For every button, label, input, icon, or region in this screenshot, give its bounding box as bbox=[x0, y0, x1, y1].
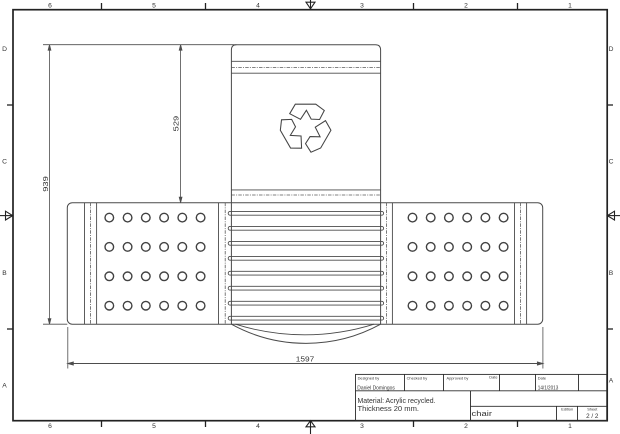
svg-text:Designed by: Designed by bbox=[358, 376, 380, 381]
svg-text:3: 3 bbox=[360, 2, 364, 9]
svg-text:chair: chair bbox=[472, 409, 493, 418]
svg-text:6: 6 bbox=[48, 423, 52, 430]
svg-text:D: D bbox=[2, 46, 7, 53]
svg-text:D: D bbox=[609, 46, 614, 53]
svg-text:C: C bbox=[609, 159, 614, 166]
svg-text:1: 1 bbox=[568, 2, 572, 9]
svg-text:Daniel Domingos: Daniel Domingos bbox=[357, 385, 395, 391]
svg-text:Thickness 20 mm.: Thickness 20 mm. bbox=[358, 404, 420, 413]
svg-text:A: A bbox=[2, 383, 7, 390]
svg-text:5: 5 bbox=[152, 2, 156, 9]
svg-text:Approved by: Approved by bbox=[447, 376, 469, 381]
svg-text:Edition: Edition bbox=[561, 407, 573, 412]
svg-text:4: 4 bbox=[256, 423, 260, 430]
svg-text:14/1/2013: 14/1/2013 bbox=[538, 385, 559, 391]
svg-text:B: B bbox=[2, 270, 7, 277]
svg-text:3: 3 bbox=[360, 423, 364, 430]
svg-text:C: C bbox=[2, 159, 7, 166]
svg-text:6: 6 bbox=[48, 2, 52, 9]
svg-text:1: 1 bbox=[568, 423, 572, 430]
svg-text:Date: Date bbox=[489, 375, 497, 380]
svg-text:Checked by: Checked by bbox=[407, 376, 428, 381]
svg-text:Sheet: Sheet bbox=[587, 406, 598, 411]
svg-text:939: 939 bbox=[41, 176, 50, 192]
svg-text:529: 529 bbox=[172, 116, 181, 132]
svg-text:5: 5 bbox=[152, 423, 156, 430]
svg-text:2 / 2: 2 / 2 bbox=[586, 413, 599, 420]
svg-text:2: 2 bbox=[464, 423, 468, 430]
svg-text:1597: 1597 bbox=[296, 355, 315, 364]
svg-text:A: A bbox=[609, 378, 614, 385]
svg-text:2: 2 bbox=[464, 2, 468, 9]
svg-text:Date: Date bbox=[538, 376, 546, 381]
svg-text:4: 4 bbox=[256, 2, 260, 9]
svg-text:B: B bbox=[609, 270, 614, 277]
